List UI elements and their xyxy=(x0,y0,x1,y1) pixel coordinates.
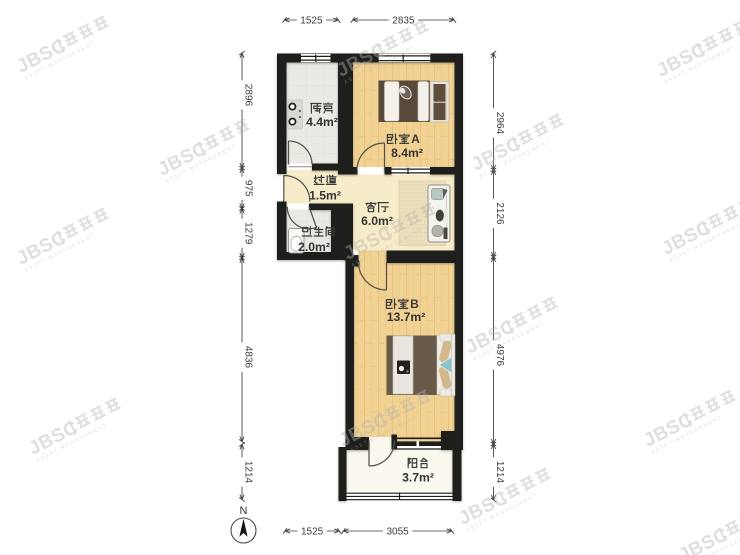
svg-text:1214: 1214 xyxy=(243,461,254,484)
svg-text:8.4m²: 8.4m² xyxy=(391,146,423,160)
svg-text:2126: 2126 xyxy=(494,202,505,225)
svg-text:4836: 4836 xyxy=(243,346,254,369)
svg-text:3.7m²: 3.7m² xyxy=(402,471,434,485)
svg-text:975: 975 xyxy=(243,180,254,197)
svg-text:B: B xyxy=(410,297,419,311)
svg-text:A: A xyxy=(411,132,420,146)
svg-text:1525: 1525 xyxy=(300,16,323,27)
svg-text:1279: 1279 xyxy=(243,222,254,245)
svg-text:2835: 2835 xyxy=(392,16,415,27)
svg-text:1214: 1214 xyxy=(494,461,505,484)
svg-text:4.4m²: 4.4m² xyxy=(306,115,338,129)
svg-text:N: N xyxy=(240,505,248,517)
svg-text:2.0m²: 2.0m² xyxy=(298,240,330,254)
svg-text:13.7m²: 13.7m² xyxy=(387,310,426,324)
svg-text:1.5m²: 1.5m² xyxy=(309,189,341,203)
svg-text:2896: 2896 xyxy=(243,84,254,107)
svg-text:3055: 3055 xyxy=(386,527,409,538)
svg-text:2964: 2964 xyxy=(494,112,505,135)
svg-text:1525: 1525 xyxy=(301,527,324,538)
